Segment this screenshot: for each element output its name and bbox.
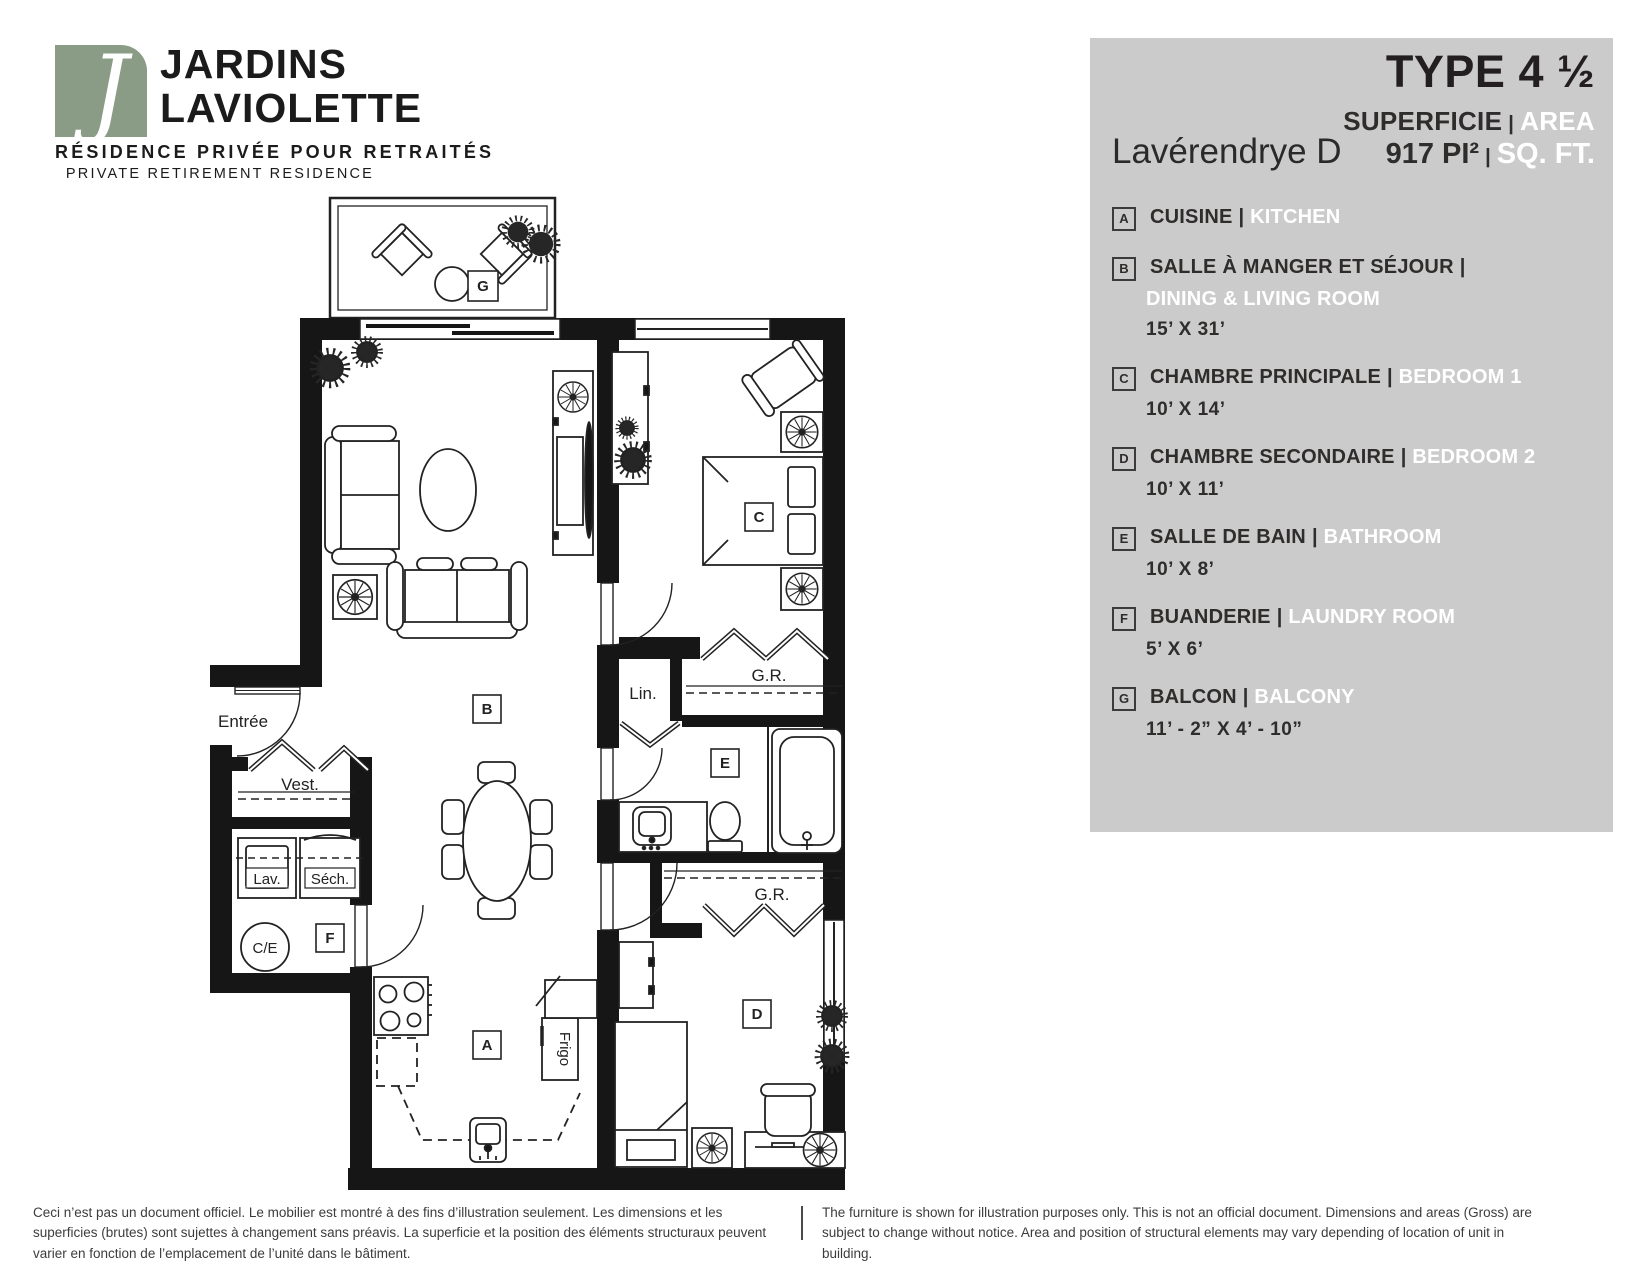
room-label-g: G (477, 278, 489, 295)
dining-chair (442, 800, 464, 834)
tagline-en: PRIVATE RETIREMENT RESIDENCE (55, 166, 385, 182)
balcony-table (435, 267, 469, 301)
desk (745, 1132, 845, 1168)
dryer-label: Séch. (311, 871, 349, 888)
legend-key-c: C (1112, 367, 1136, 391)
separator: | (1381, 366, 1399, 388)
legend-label-fr: CHAMBRE PRINCIPALE (1150, 366, 1381, 388)
brand-name: JARDINS LAVIOLETTE (160, 42, 422, 130)
legend-key-d: D (1112, 447, 1136, 471)
logo-monogram-square: J (55, 45, 147, 137)
legend-label-fr: BUANDERIE (1150, 606, 1271, 628)
dresser (619, 942, 654, 1008)
bedroom1-window (635, 319, 770, 339)
loveseat (325, 426, 399, 564)
legend-label-fr: SALLE À MANGER ET SÉJOUR (1150, 256, 1454, 278)
plant-icon (354, 339, 380, 365)
bedroom1-closet-doors (702, 631, 828, 659)
tv-console (553, 371, 593, 555)
room-label-e: E (720, 755, 730, 772)
legend-label-fr: CHAMBRE SECONDAIRE (1150, 446, 1395, 468)
room-label-a: A (482, 1037, 493, 1054)
disclaimer-fr: Ceci n’est pas un document officiel. Le … (33, 1203, 788, 1264)
area-heading-en: AREA (1520, 106, 1595, 136)
legend-label-en: BEDROOM 1 (1399, 366, 1522, 388)
bedroom2-closet-doors (704, 905, 824, 934)
disclaimer-en: The furniture is shown for illustration … (822, 1203, 1557, 1264)
legend-dimensions: 15’ X 31’ (1146, 319, 1597, 341)
unit-type-title: TYPE 4 ½ (1386, 46, 1595, 98)
logo-monogram: J (63, 31, 155, 151)
plant-stand (692, 1128, 732, 1168)
legend-label-en: BATHROOM (1324, 526, 1442, 548)
legend-item-bathroom: E SALLE DE BAIN|BATHROOM 10’ X 8’ (1112, 526, 1597, 581)
legend-item-bedroom1: C CHAMBRE PRINCIPALE|BEDROOM 1 10’ X 14’ (1112, 366, 1597, 421)
plant-stand (333, 575, 377, 619)
balcony: G (330, 198, 557, 318)
bedroom2-window (824, 920, 844, 1060)
bedroom2-door (601, 863, 677, 930)
room-label-d: D (752, 1006, 763, 1023)
linen-label: Lin. (629, 684, 656, 703)
footer-divider (801, 1206, 803, 1240)
room-legend: A CUISINE|KITCHEN B SALLE À MANGER ET SÉ… (1112, 206, 1597, 766)
legend-item-bedroom2: D CHAMBRE SECONDAIRE|BEDROOM 2 10’ X 11’ (1112, 446, 1597, 501)
room-label-f: F (325, 930, 334, 947)
area-heading: SUPERFICIE|AREA (1343, 106, 1595, 137)
fridge-label: Frigo (556, 1032, 573, 1066)
dining-chair (530, 845, 552, 879)
vestibule-label: Vest. (281, 775, 319, 794)
bedroom1-door (601, 583, 672, 645)
closet2-label: G.R. (755, 885, 790, 904)
unit-name: Lavérendrye D (1112, 132, 1342, 172)
separator: | (1395, 446, 1413, 468)
legend-item-dining-living: B SALLE À MANGER ET SÉJOUR| DINING & LIV… (1112, 256, 1597, 341)
bedroom1 (612, 339, 825, 610)
stove (374, 977, 432, 1035)
separator: | (1479, 146, 1497, 168)
water-heater-label: C/E (252, 940, 277, 957)
kitchen (374, 976, 597, 1162)
legend-label-fr: BALCON (1150, 686, 1237, 708)
legend-label-en: LAUNDRY ROOM (1288, 606, 1455, 628)
legend-key-e: E (1112, 527, 1136, 551)
desk-chair (761, 1084, 815, 1136)
dining-table (463, 781, 531, 901)
toilet (708, 802, 742, 852)
bedroom2 (615, 942, 846, 1168)
area-heading-fr: SUPERFICIE (1343, 106, 1502, 136)
info-panel: TYPE 4 ½ SUPERFICIE|AREA Lavérendrye D 9… (1090, 38, 1613, 832)
legend-key-a: A (1112, 207, 1136, 231)
separator: | (1271, 606, 1289, 628)
bed (615, 1022, 687, 1167)
entry-label: Entrée (218, 712, 268, 731)
sofa (387, 558, 527, 638)
closet1-label: G.R. (752, 666, 787, 685)
separator: | (1502, 113, 1520, 135)
room-label-c: C (754, 509, 765, 526)
brand-line1: JARDINS (160, 42, 422, 86)
legend-dimensions: 11’ - 2” X 4’ - 10” (1146, 719, 1597, 741)
dining-chair (478, 762, 515, 783)
kitchen-door (355, 905, 423, 967)
coffee-table (420, 449, 476, 531)
legend-key-f: F (1112, 607, 1136, 631)
legend-label-en: KITCHEN (1250, 206, 1340, 228)
bathroom-door (601, 748, 662, 800)
armchair (740, 339, 825, 418)
dining-chair (530, 800, 552, 834)
area-unit-en: SQ. FT. (1497, 138, 1595, 170)
brand-line2: LAVIOLETTE (160, 86, 422, 130)
linen-closet-door (621, 723, 679, 745)
nightstand (781, 412, 823, 452)
dining-chair (442, 845, 464, 879)
legend-label-en: BALCONY (1254, 686, 1354, 708)
separator: | (1306, 526, 1324, 548)
separator: | (1237, 686, 1255, 708)
legend-key-b: B (1112, 257, 1136, 281)
sink (633, 807, 671, 849)
separator: | (1233, 206, 1251, 228)
legend-label-fr: CUISINE (1150, 206, 1233, 228)
bathtub (772, 729, 842, 853)
kitchen-sink (470, 1118, 506, 1162)
patio-door (360, 319, 560, 339)
legend-item-laundry: F BUANDERIE|LAUNDRY ROOM 5’ X 6’ (1112, 606, 1597, 661)
legend-dimensions: 10’ X 11’ (1146, 479, 1597, 501)
nightstand (781, 568, 823, 610)
legend-label-en: BEDROOM 2 (1412, 446, 1535, 468)
washer-label: Lav. (253, 871, 280, 888)
legend-label-fr: SALLE DE BAIN (1150, 526, 1306, 548)
legend-dimensions: 10’ X 14’ (1146, 399, 1597, 421)
legend-dimensions: 10’ X 8’ (1146, 559, 1597, 581)
legend-item-kitchen: A CUISINE|KITCHEN (1112, 206, 1597, 231)
legend-item-balcony: G BALCON|BALCONY 11’ - 2” X 4’ - 10” (1112, 686, 1597, 741)
dining-set (442, 762, 552, 919)
area-value-number: 917 PI² (1386, 138, 1480, 170)
room-label-b: B (482, 701, 493, 718)
legend-key-g: G (1112, 687, 1136, 711)
legend-label-en: DINING & LIVING ROOM (1146, 288, 1380, 310)
separator: | (1454, 256, 1472, 278)
floor-plan: G (180, 190, 880, 1190)
walls (210, 318, 845, 1190)
area-value: 917 PI²|SQ. FT. (1386, 138, 1595, 171)
tagline-fr: RÉSIDENCE PRIVÉE POUR RETRAITÉS (55, 142, 385, 163)
legend-dimensions: 5’ X 6’ (1146, 639, 1597, 661)
